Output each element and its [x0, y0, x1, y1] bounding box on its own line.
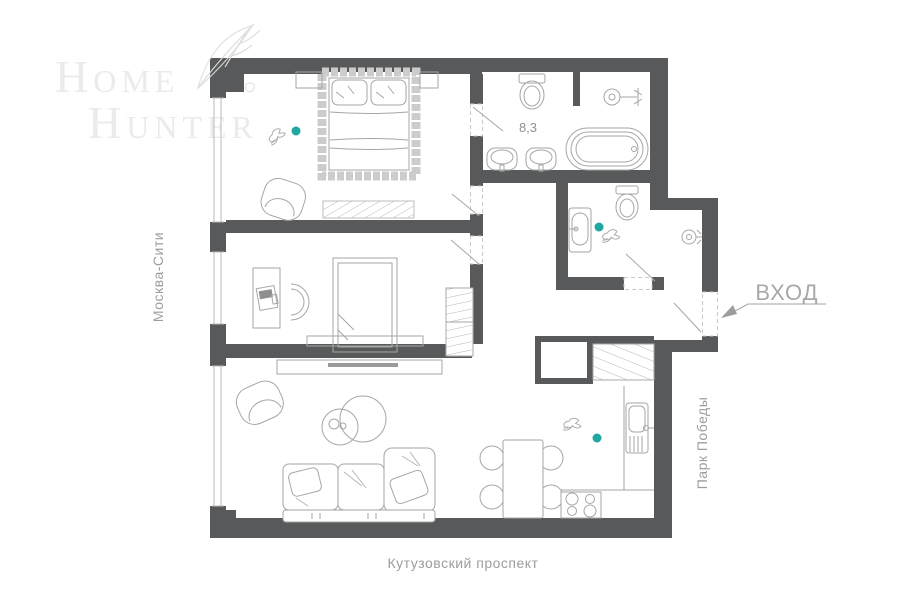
living-room — [232, 360, 442, 522]
chair — [480, 485, 504, 509]
bathroom-main: 8,3 — [487, 74, 648, 171]
bird-sketch-icon — [601, 227, 621, 245]
bird-sketch-icon — [562, 416, 583, 435]
single-bed — [333, 258, 397, 352]
desk — [253, 268, 280, 328]
desk-chair — [291, 284, 309, 320]
nightstand-right — [420, 72, 438, 88]
entrance-annotation: ВХОД — [721, 280, 826, 318]
washbasin — [569, 208, 591, 252]
sofa — [283, 448, 435, 522]
logo-text-line2: Hunter — [88, 97, 258, 148]
dining-table — [503, 440, 543, 518]
double-bed — [322, 72, 416, 176]
bird-sketch-icon — [267, 127, 287, 145]
logo-text-line1: Home — [55, 51, 179, 102]
armchair-bedroom — [257, 175, 309, 224]
washbasin — [487, 148, 517, 171]
master-bedroom — [257, 72, 438, 224]
floor-plan: Home Hunter — [0, 0, 915, 610]
accent-dot — [292, 127, 301, 136]
wardrobe-hall — [593, 344, 654, 380]
entrance-arrow-line — [735, 304, 826, 311]
windows — [212, 98, 224, 506]
entrance-arrow-icon — [721, 305, 737, 318]
window-living-room — [212, 366, 224, 506]
room-area-label: 8,3 — [519, 120, 537, 135]
bathroom-second — [569, 186, 702, 252]
south-street-label: Кутузовский проспект — [388, 555, 539, 571]
door-swing-bathroom-second — [626, 254, 655, 281]
coffee-tables — [322, 396, 386, 445]
door-swing-entry — [674, 303, 701, 332]
shower-head-icon — [682, 230, 702, 244]
dining-table-group — [480, 440, 563, 518]
window-bedroom-second — [212, 252, 224, 324]
tv — [328, 363, 398, 367]
east-street-label: Парк Победы — [694, 397, 710, 490]
stove — [561, 492, 601, 518]
toilet — [519, 74, 545, 109]
washbasin — [526, 148, 556, 171]
armchair-living — [232, 376, 289, 429]
west-street-label: Москва-Сити — [150, 232, 166, 322]
shower-head-icon — [604, 88, 642, 106]
entrance-label: ВХОД — [755, 280, 818, 305]
radiator — [323, 201, 414, 218]
floor-plan-page: Home Hunter — [0, 0, 915, 610]
bathtub — [566, 128, 648, 170]
kitchen-sink — [626, 403, 654, 453]
tv-console — [277, 360, 442, 374]
wardrobe-bedroom — [446, 288, 473, 356]
accent-dot — [595, 223, 604, 232]
accent-dot — [593, 434, 602, 443]
second-bedroom — [253, 258, 473, 356]
toilet — [616, 186, 638, 220]
chair — [480, 446, 504, 470]
